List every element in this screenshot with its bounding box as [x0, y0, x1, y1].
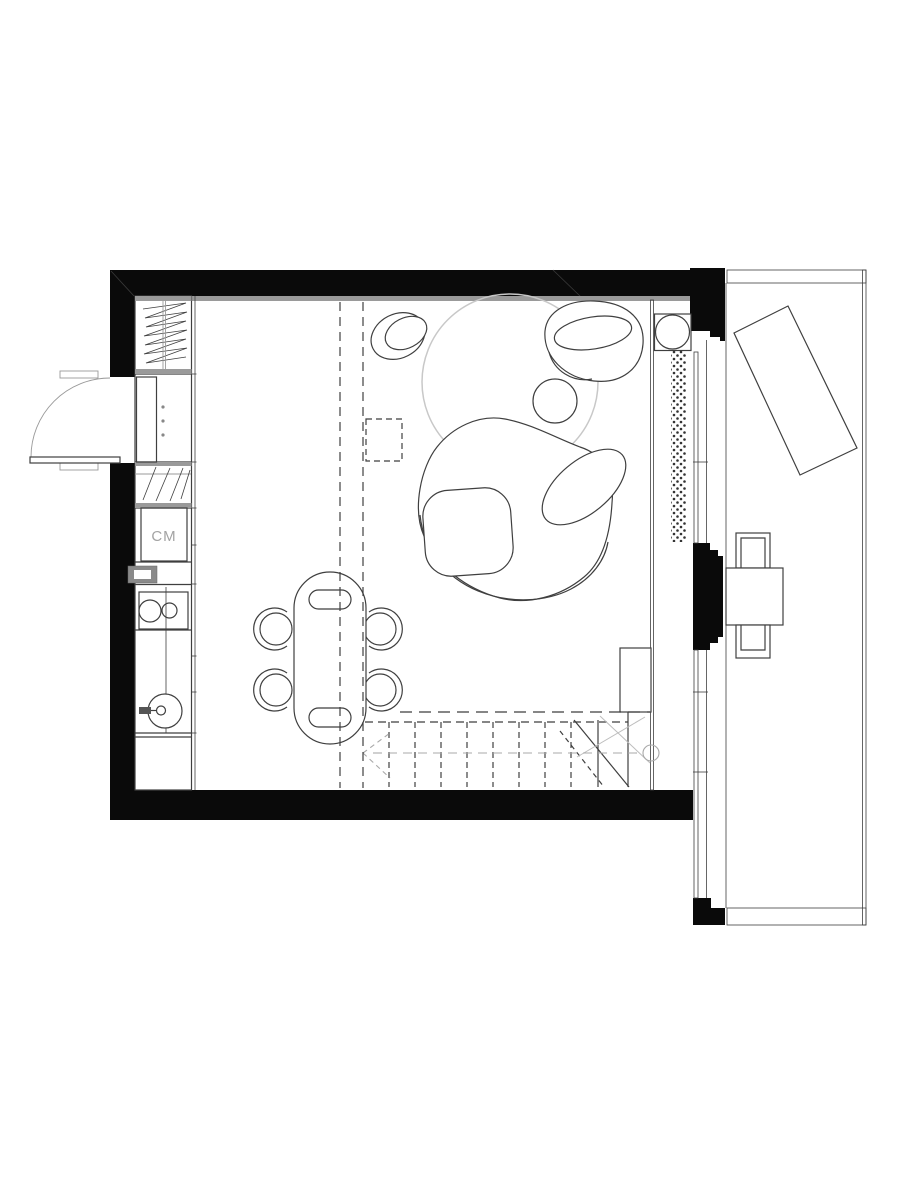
washing-machine-label: CM [151, 528, 176, 545]
wardrobe-hanging-icon [143, 296, 187, 374]
pouf-icon [363, 304, 433, 369]
balcony-chair-icon [736, 625, 770, 658]
kitchen-run: CM [128, 296, 197, 790]
radiator-dots-icon [671, 350, 686, 542]
interior-partition-line [651, 300, 654, 790]
balcony-chair-icon [736, 533, 770, 568]
dining-chair-icon [254, 608, 292, 650]
sun-lounger-icon [734, 306, 857, 475]
stair-landing [620, 648, 651, 712]
cooktop-two-burner-icon [139, 592, 188, 629]
floor-plan-page: CM [0, 0, 900, 1200]
balcony-table-icon [726, 568, 783, 625]
shoe-cabinet-icon [137, 377, 165, 462]
stairs-icon [363, 712, 659, 787]
washing-machine-icon: CM [141, 508, 187, 561]
dining-chair-icon [364, 669, 402, 711]
wall-oven-icon [128, 566, 157, 583]
dining-set [254, 572, 403, 744]
side-table-icon [533, 379, 577, 423]
wall-finish-band [135, 296, 690, 301]
armchair-icon [545, 301, 643, 381]
floor-plan-drawing: CM [0, 0, 900, 1200]
column-stove-icon [655, 314, 692, 351]
dashed-opening-marker [366, 419, 402, 461]
stair-direction-arrow-icon [363, 733, 659, 778]
dining-chair-icon [254, 669, 292, 711]
balcony [726, 270, 866, 925]
entry-door-swing-icon [30, 371, 120, 470]
cabinet-hatch-icon [143, 467, 190, 501]
sofa-icon [418, 418, 639, 601]
dining-table-icon [294, 572, 366, 744]
dining-chair-icon [364, 608, 402, 650]
sofa-cushion [421, 486, 515, 578]
